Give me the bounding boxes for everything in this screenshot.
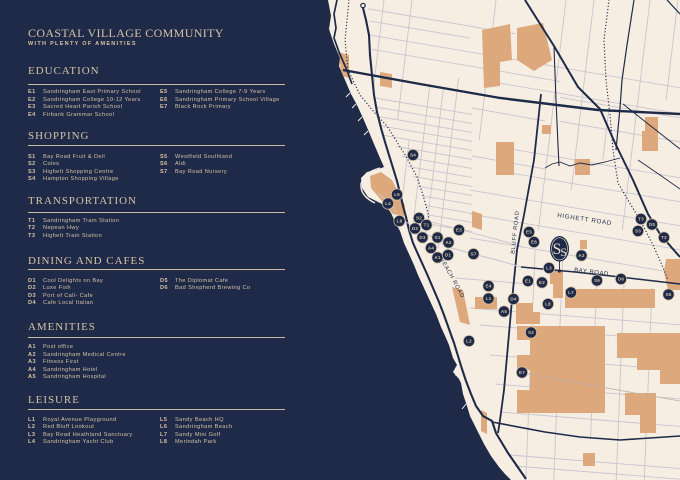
svg-text:E2: E2: [539, 280, 545, 285]
svg-text:D1: D1: [445, 253, 452, 258]
svg-text:S7: S7: [470, 252, 476, 257]
svg-text:S2: S2: [528, 330, 534, 335]
svg-text:E3: E3: [456, 228, 462, 233]
svg-text:E6: E6: [531, 240, 537, 245]
svg-text:E5: E5: [526, 230, 532, 235]
svg-text:D2: D2: [412, 226, 419, 231]
svg-text:S4: S4: [410, 153, 416, 158]
svg-text:D5: D5: [649, 222, 656, 227]
svg-text:S5: S5: [665, 292, 671, 297]
svg-text:D4: D4: [510, 297, 517, 302]
svg-text:S2: S2: [416, 216, 422, 221]
svg-text:A2: A2: [445, 240, 452, 245]
svg-text:S3: S3: [635, 229, 641, 234]
svg-text:T1: T1: [424, 223, 430, 228]
svg-text:T2: T2: [661, 235, 667, 240]
svg-text:E7: E7: [519, 370, 525, 375]
svg-text:E1: E1: [525, 279, 531, 284]
svg-text:L5: L5: [394, 192, 400, 197]
svg-text:A5: A5: [501, 309, 508, 314]
svg-text:S: S: [560, 245, 567, 259]
svg-text:T3: T3: [638, 217, 644, 222]
svg-text:L3: L3: [546, 266, 552, 271]
svg-text:S6: S6: [594, 278, 600, 283]
svg-text:A3: A3: [578, 253, 585, 258]
svg-text:L4: L4: [385, 201, 391, 206]
svg-text:A4: A4: [428, 246, 435, 251]
svg-text:A1: A1: [434, 255, 441, 260]
svg-text:L2: L2: [466, 339, 472, 344]
svg-text:L8: L8: [545, 302, 551, 307]
svg-text:E4: E4: [485, 284, 491, 289]
svg-text:S1: S1: [434, 235, 440, 240]
svg-text:L6: L6: [397, 219, 403, 224]
svg-text:D3: D3: [419, 235, 426, 240]
svg-text:L7: L7: [568, 290, 574, 295]
svg-text:L1: L1: [486, 296, 492, 301]
svg-text:D6: D6: [618, 277, 625, 282]
